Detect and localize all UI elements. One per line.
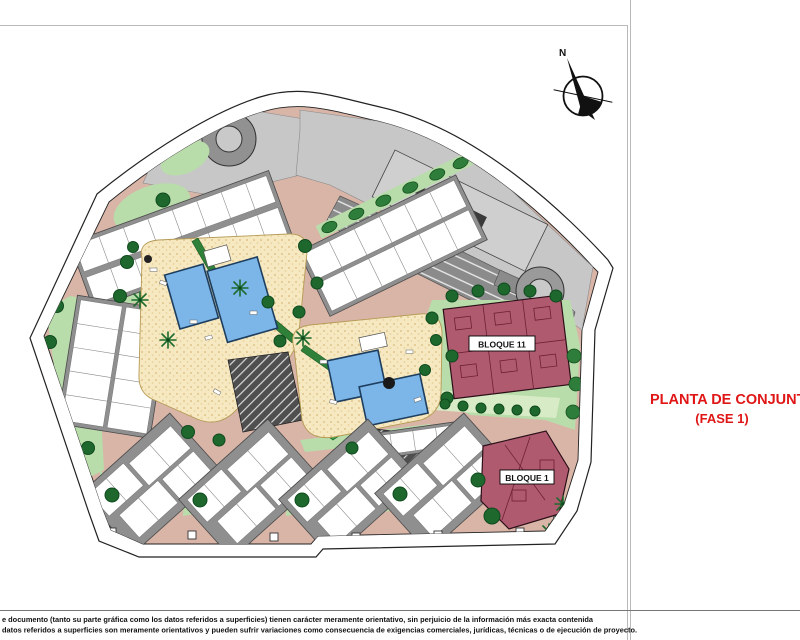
disclaimer-line-2: datos referidos a superficies son merame…: [2, 626, 637, 635]
title-line-2: (FASE 1): [695, 411, 748, 426]
compass-north-label: N: [559, 48, 566, 59]
spa-circle: [383, 377, 395, 389]
title-line-1: PLANTA DE CONJUNTO: [650, 392, 800, 408]
spa-circle: [144, 255, 152, 263]
bloque-11-label: BLOQUE 11: [478, 340, 526, 350]
site-plan-svg: BLOQUE 11 BLOQUE 1: [0, 0, 800, 640]
disclaimer-text: e documento (tanto su parte gráfica como…: [2, 615, 637, 635]
drawing-sheet: BLOQUE 11 BLOQUE 1: [0, 0, 800, 640]
disclaimer-line-1: e documento (tanto su parte gráfica como…: [2, 615, 594, 624]
bloque-1-label: BLOQUE 1: [505, 473, 549, 483]
